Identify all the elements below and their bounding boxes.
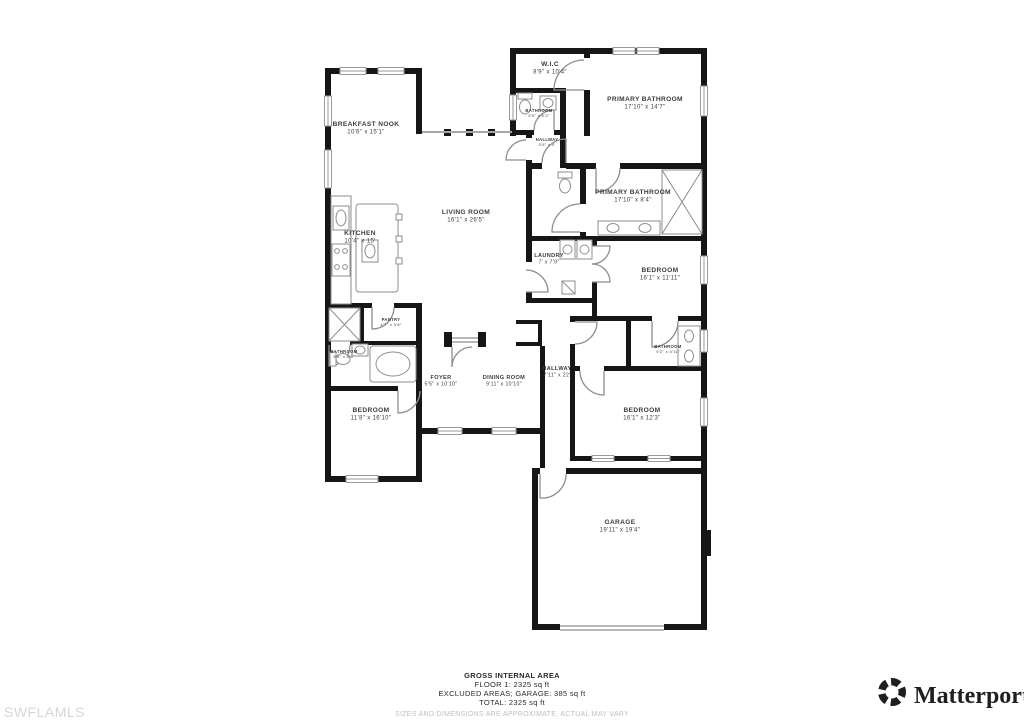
room-label-hallway: HALLWAY3'6" x 4' — [536, 137, 559, 147]
matterport-icon — [878, 678, 906, 706]
floor-plan-page: BREAKFAST NOOK10'6" x 15'1"W.I.C8'9" x 1… — [0, 0, 1024, 723]
room-label-laundry: LAUNDRY7' x 7'9" — [534, 253, 564, 265]
room-label-garage: GARAGE19'11" x 19'4" — [600, 519, 641, 533]
bathtub-icon — [370, 346, 416, 382]
room-label-pantry: PANTRY4'7" x 3'6" — [380, 317, 402, 327]
room-label-bathroom: BATHROOM5'5" x 8'8" — [330, 349, 357, 359]
footer-disclaimer: SIZES AND DIMENSIONS ARE APPROXIMATE, AC… — [395, 711, 629, 718]
room-label-primary-bathroom: PRIMARY BATHROOM17'10" x 8'4" — [595, 189, 671, 203]
room-label-bathroom: BATHROOM5'5" x 5'2" — [525, 108, 552, 118]
room-label-bedroom: BEDROOM16'1" x 11'11" — [640, 267, 680, 281]
room-label-w-i-c: W.I.C8'9" x 10'4" — [533, 61, 567, 75]
room-label-hallway: HALLWAY7'11" x 22' — [542, 366, 571, 378]
toilet-icon — [518, 93, 532, 99]
room-label-living-room: LIVING ROOM16'1" x 26'5" — [442, 209, 490, 223]
dryer-icon — [577, 240, 592, 259]
room-label-bedroom: BEDROOM16'1" x 12'3" — [623, 407, 660, 421]
floor-plan-drawing: BREAKFAST NOOK10'6" x 15'1"W.I.C8'9" x 1… — [0, 0, 1024, 723]
footer: GROSS INTERNAL AREA FLOOR 1: 2325 sq ft … — [395, 671, 629, 718]
range-icon — [332, 244, 350, 276]
toilet-icon — [558, 172, 572, 178]
matterport-wordmark: Matterport — [914, 683, 1024, 709]
footer-floor1: FLOOR 1: 2325 sq ft — [475, 680, 551, 689]
room-label-breakfast-nook: BREAKFAST NOOK10'6" x 15'1" — [333, 121, 400, 135]
room-label-bathroom: BATHROOM9'2" x 4'11" — [654, 344, 681, 354]
matterport-logo: Matterport ® — [878, 678, 1024, 709]
footer-total: TOTAL: 2325 sq ft — [479, 698, 545, 707]
footer-gross-area: GROSS INTERNAL AREA — [464, 671, 560, 680]
room-label-primary-bathroom: PRIMARY BATHROOM17'10" x 14'7" — [607, 96, 683, 110]
watermark-swflamls: SWFLAMLS — [4, 704, 85, 720]
footer-excluded: EXCLUDED AREAS; GARAGE: 385 sq ft — [438, 689, 586, 698]
room-label-dining-room: DINING ROOM9'11" x 10'10" — [483, 375, 525, 387]
room-label-bedroom: BEDROOM11'8" x 16'10" — [351, 407, 392, 421]
room-label-foyer: FOYER5'5" x 10'10" — [424, 375, 457, 387]
